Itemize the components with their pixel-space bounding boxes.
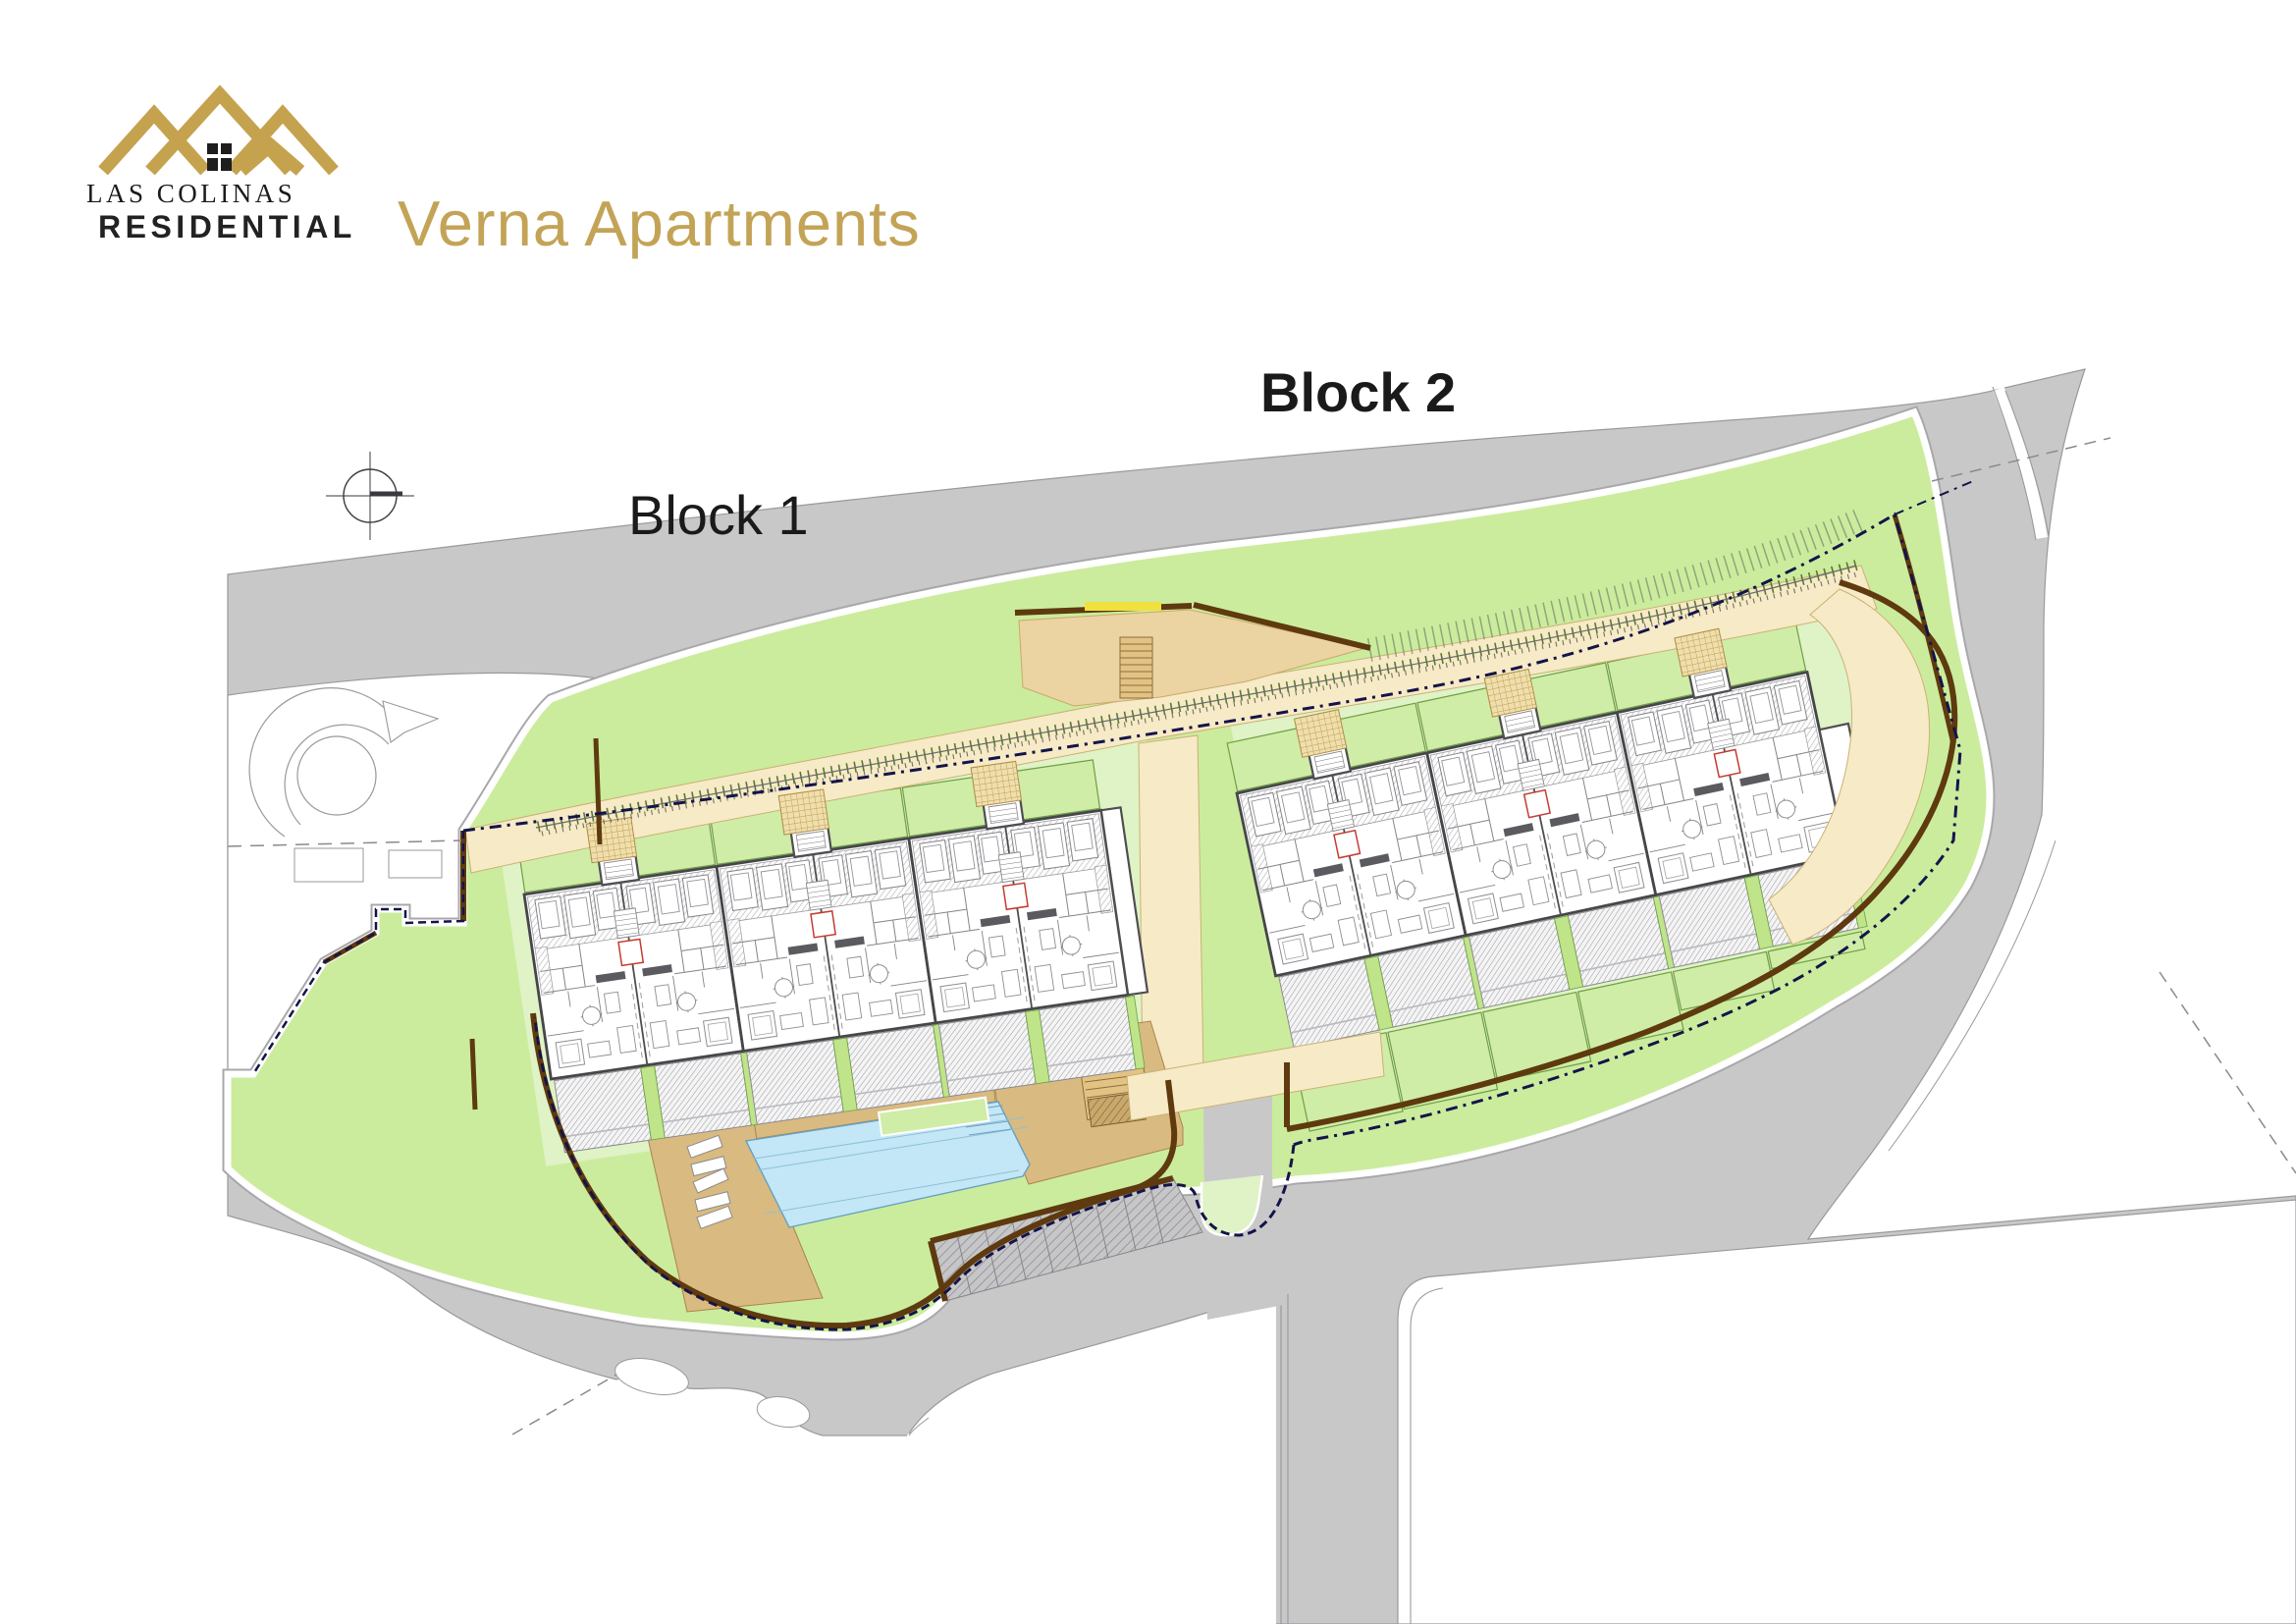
svg-text:Verna Apartments: Verna Apartments	[398, 188, 921, 259]
svg-text:Block 1: Block 1	[628, 484, 809, 546]
svg-text:Block 2: Block 2	[1260, 361, 1456, 423]
svg-text:RESIDENTIAL: RESIDENTIAL	[98, 209, 356, 244]
svg-text:LAS COLINAS: LAS COLINAS	[86, 179, 295, 208]
